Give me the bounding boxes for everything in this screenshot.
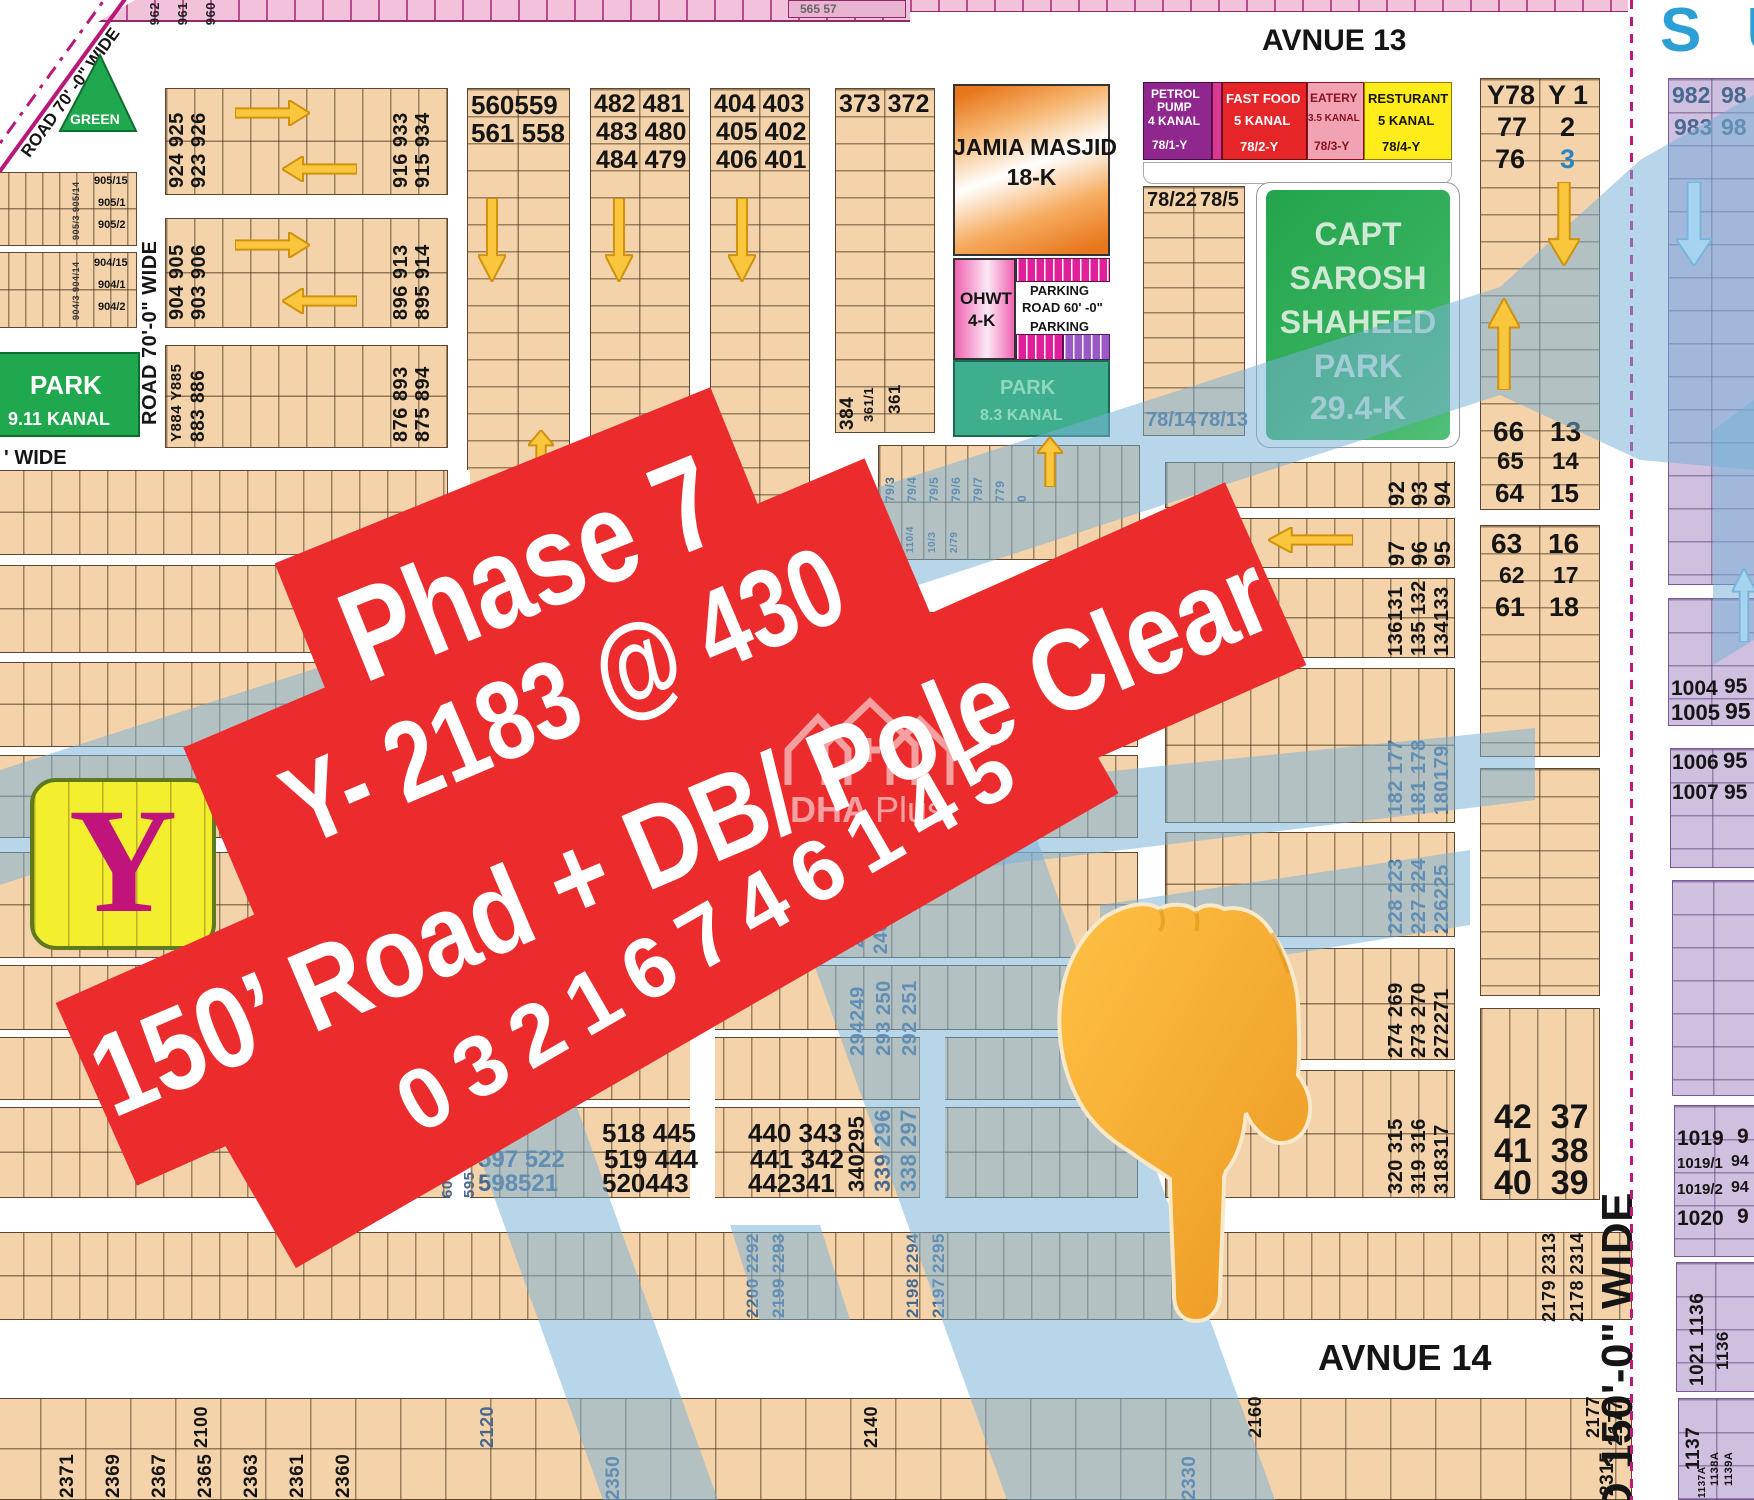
svg-text:Plus: Plus (875, 789, 945, 830)
svg-text:DHA: DHA (790, 789, 868, 830)
